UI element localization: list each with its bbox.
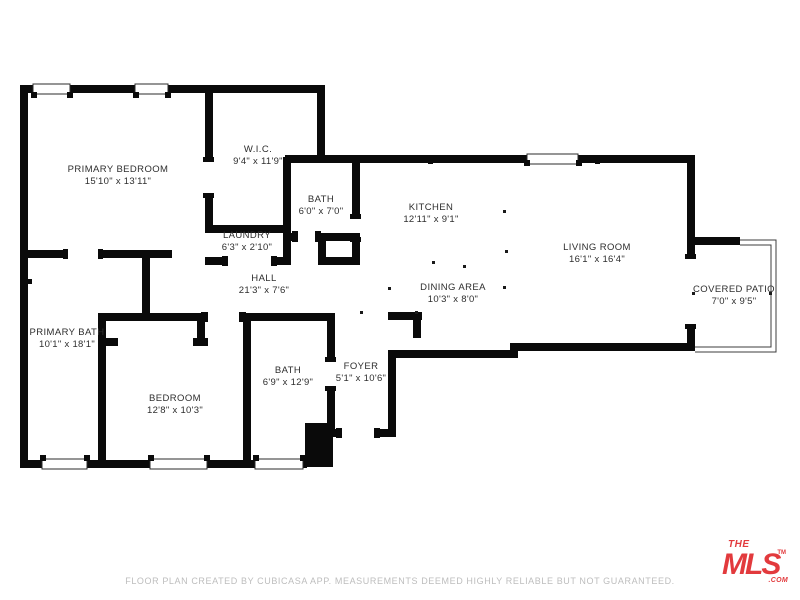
walls (20, 85, 740, 468)
wall-laundry-right (283, 157, 291, 265)
window (135, 84, 168, 94)
entry-marker (305, 423, 333, 467)
wall-living-bottom (510, 343, 695, 351)
patio-outline-outer (695, 240, 776, 352)
wall-kitchen-living-top (285, 155, 695, 163)
wall-bedroom2-top (98, 313, 205, 321)
wall-kitchen-left-upper (352, 155, 360, 217)
wall-wic-right (317, 85, 325, 163)
wall-patio-top (687, 237, 740, 245)
window (150, 459, 207, 469)
mls-logo-com: .COM (769, 577, 788, 584)
wall-primary-bedroom-bottom-left (20, 250, 68, 258)
wall-laundry-top (205, 225, 291, 233)
mls-logo-row: MLS TM .COM (722, 550, 788, 580)
wall-left (20, 85, 28, 468)
wall-foyer-right (388, 350, 396, 437)
wall-bath2-right-upper (327, 321, 335, 360)
wall-primary-bedroom-bottom-right (98, 250, 172, 258)
mls-logo-trademark: TM (777, 550, 786, 556)
window (255, 459, 303, 469)
patio-outline (695, 240, 776, 352)
fixture-ticks (360, 210, 772, 314)
wall-hall-left (142, 250, 150, 321)
door-window-markers (27, 92, 696, 461)
wall-bedroom-wic-upper (205, 85, 213, 160)
window (527, 154, 578, 164)
wall-dining-nook-vert (413, 320, 421, 338)
wall-primarybath-bedroom (98, 313, 106, 468)
mls-logo: THE MLS TM .COM (722, 540, 788, 592)
wall-bath2-top (243, 313, 335, 321)
wall-bedroom2-closet-left (98, 338, 118, 346)
floor-plan-page: { "floor_plan": { "colors": { "walls": "… (0, 0, 800, 600)
wall-bedroom2-closet-vert (197, 321, 205, 346)
wall-dining-bottom (396, 350, 517, 358)
wall-bedroom-wic-lower (205, 197, 213, 227)
wall-bedroom2-right (243, 313, 251, 468)
patio-outline-inner (695, 245, 771, 347)
footer-disclaimer: FLOOR PLAN CREATED BY CUBICASA APP. MEAS… (0, 576, 800, 586)
floor-plan-drawing (0, 0, 800, 600)
windows (33, 84, 578, 469)
window (42, 459, 87, 469)
window (33, 84, 70, 94)
wall-kitchen-left-lower (352, 240, 360, 265)
